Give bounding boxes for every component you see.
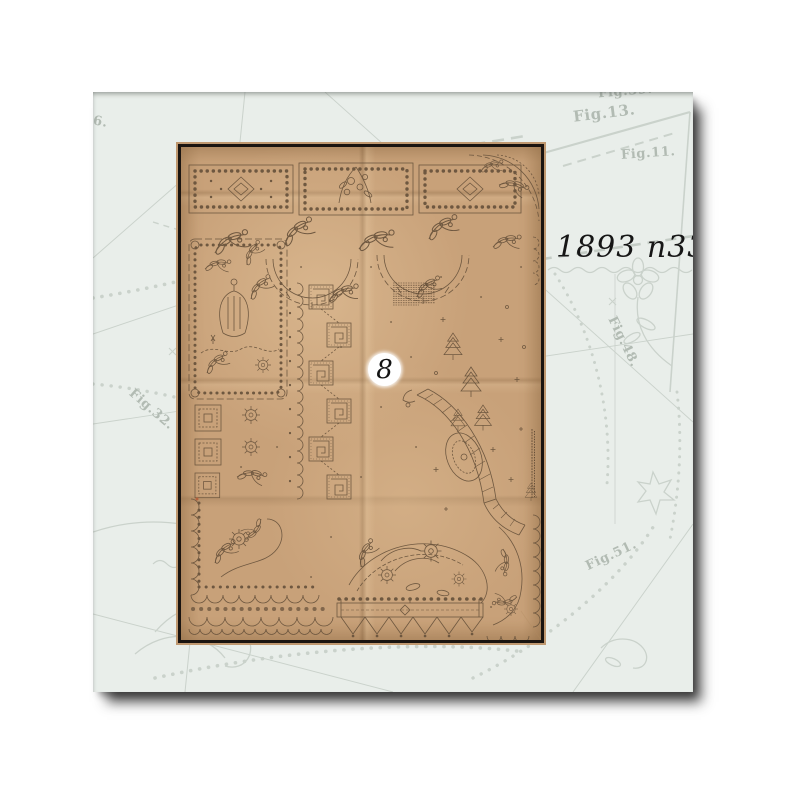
collage-card: Fig.39. Fig.13. Fig.11. Fig.48. Fig.32. …: [93, 92, 693, 692]
caption-text: 1893 n33: [556, 230, 693, 265]
sheet-number: 8: [376, 355, 393, 385]
page: Fig.39. Fig.13. Fig.11. Fig.48. Fig.32. …: [0, 0, 800, 800]
sheet-number-badge: 8: [368, 353, 401, 386]
embroidery-pattern-art: [181, 147, 541, 640]
pattern-sheet-paper: 8: [181, 147, 541, 640]
pattern-sheet: 8: [178, 144, 544, 643]
